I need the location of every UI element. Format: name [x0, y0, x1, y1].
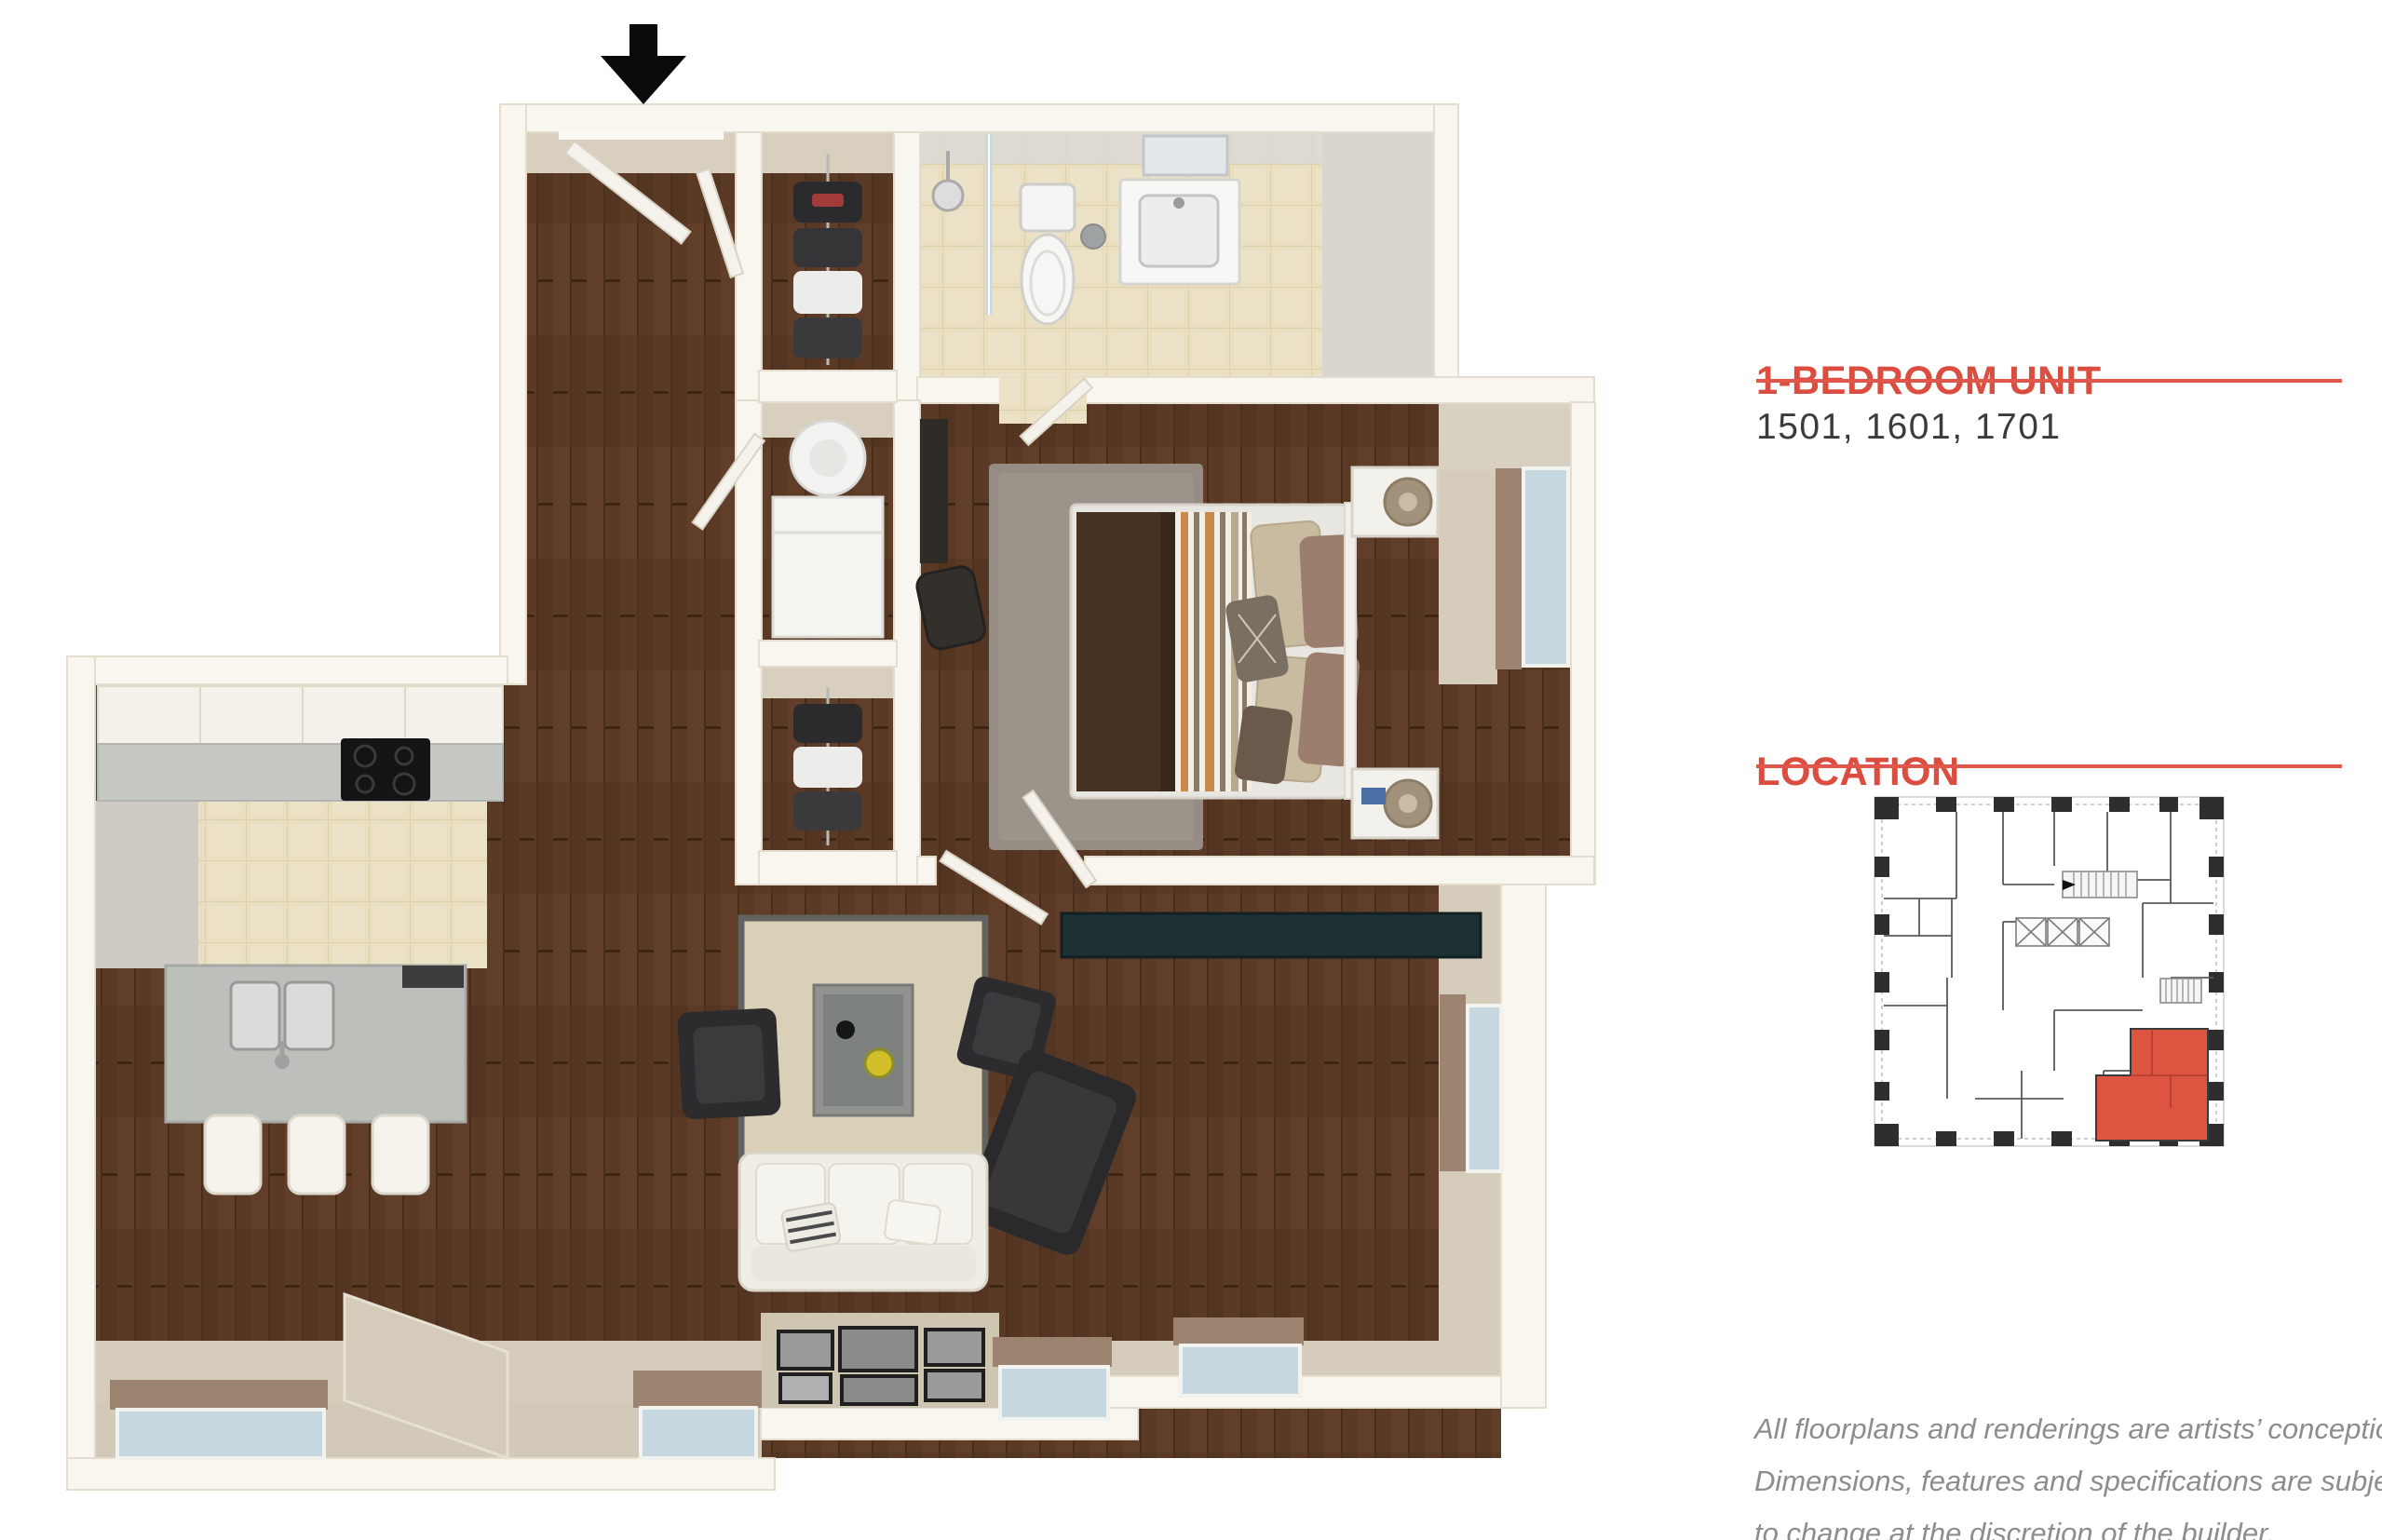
window-sill	[1173, 1317, 1304, 1345]
wall-closet-b-cap	[759, 851, 897, 885]
washer-dryer	[773, 497, 883, 637]
lamp-top	[1399, 794, 1417, 813]
wall-laundry-divider	[759, 641, 897, 667]
wall-left-entry	[500, 104, 526, 684]
coffee-table-glass	[823, 994, 903, 1106]
closet-a	[793, 154, 862, 365]
location-title-underline	[1756, 764, 2342, 768]
kettle	[836, 1020, 855, 1039]
bedroom-window-glass	[1523, 468, 1568, 666]
entry-threshold	[559, 130, 724, 140]
sink-faucet	[275, 1054, 290, 1069]
closet-b	[793, 687, 862, 845]
pillow-dark	[1234, 705, 1294, 786]
wall-bottom-right	[1108, 1376, 1546, 1408]
vanity-mirror	[1144, 136, 1227, 175]
window-sill	[1440, 994, 1466, 1171]
bed-headboard	[1345, 503, 1356, 799]
counter	[98, 744, 503, 801]
bathroom-wall-shade	[1322, 132, 1434, 377]
window-glass	[1000, 1367, 1108, 1419]
unit-title-underline	[1756, 379, 2342, 383]
island-dark-item	[402, 966, 464, 988]
hanging-shirt	[793, 747, 862, 788]
bedroom-ne-corner-wall	[1439, 402, 1571, 470]
wall-closet-bath	[894, 132, 920, 402]
water-heater-top	[809, 439, 846, 477]
toilet-bowl	[1022, 235, 1074, 324]
cooktop	[341, 738, 430, 801]
picture-frame	[840, 1328, 916, 1371]
window-glass	[117, 1410, 324, 1458]
hanging-shirt	[793, 791, 862, 831]
floorplan-flyer: 1-BEDROOM UNIT 1501, 1601, 1701 LOCATION	[0, 0, 2382, 1540]
picture-frame	[926, 1371, 983, 1400]
media-console	[1062, 913, 1481, 957]
elevators	[2016, 918, 2109, 946]
window-sill	[993, 1337, 1112, 1367]
bed-throw-brown	[1076, 512, 1173, 791]
disclaimer-line: Dimensions, features and specifications …	[1754, 1455, 2382, 1507]
bar-stool	[289, 1115, 345, 1194]
waste-bin	[1081, 224, 1105, 249]
window-glass	[641, 1408, 756, 1458]
bar-stool	[205, 1115, 261, 1194]
bar-stool	[372, 1115, 428, 1194]
wall-right-living	[1501, 885, 1546, 1408]
window-sill	[633, 1371, 762, 1408]
picture-frame	[842, 1376, 916, 1404]
stairwell-top	[2063, 871, 2137, 898]
floorplan-render	[0, 0, 1676, 1540]
window-glass	[1468, 1006, 1501, 1171]
hanging-shirt	[793, 704, 862, 743]
hanging-shirt	[793, 228, 862, 267]
unit-numbers: 1501, 1601, 1701	[1756, 407, 2062, 448]
vanity-faucet	[1173, 197, 1184, 209]
stairwell-right	[2160, 979, 2201, 1003]
disclaimer-line: to change at the discretion of the build…	[1754, 1507, 2382, 1540]
bathroom-north-wall-face	[920, 132, 1322, 164]
shower-head	[933, 181, 963, 210]
sink-basin	[285, 982, 333, 1049]
fruit-bowl	[865, 1049, 893, 1077]
armchair-cushion	[693, 1024, 765, 1104]
location-title: LOCATION	[1756, 750, 1960, 795]
kitchen-side-shade	[95, 801, 198, 968]
hanging-shirt	[793, 317, 862, 358]
kitchen-floor-tile	[198, 789, 487, 968]
picture-frame	[926, 1330, 983, 1365]
bedroom-window-sill	[1496, 468, 1522, 669]
bed-throw-fold	[1160, 512, 1175, 791]
sink-basin	[231, 982, 279, 1049]
wall-closet-a-cap	[759, 371, 897, 402]
picture-frames-platform	[761, 1313, 999, 1408]
wall-bedroom-bottom-a	[917, 857, 936, 885]
toilet-tank	[1021, 184, 1075, 231]
wall-top	[500, 104, 1457, 132]
window-glass	[1181, 1345, 1300, 1396]
shirt-logo	[812, 194, 844, 207]
wall-bottom-left	[67, 1458, 775, 1490]
wall-left	[67, 656, 95, 1490]
lamp-top	[1399, 493, 1417, 511]
bedroom-desk	[920, 419, 948, 563]
nightstand-book	[1361, 788, 1386, 804]
entry-arrow-icon	[601, 24, 686, 104]
wall-bath-right	[1434, 104, 1458, 402]
wall-closet-col-right	[894, 400, 920, 885]
disclaimer-line: All floorplans and renderings are artist…	[1754, 1403, 2382, 1455]
wall-bedroom-right	[1571, 402, 1595, 885]
sofa	[739, 1153, 987, 1290]
upper-cabinets	[98, 686, 503, 744]
sofa-back	[751, 1246, 976, 1281]
throw-pillow-white	[884, 1199, 941, 1245]
picture-frame	[780, 1374, 831, 1402]
picture-frame	[778, 1331, 832, 1369]
hanging-shirt	[793, 271, 862, 314]
wall-kitchen-top	[67, 656, 508, 684]
wall-bedroom-bottom-b	[1085, 857, 1594, 885]
disclaimer: All floorplans and renderings are artist…	[1754, 1403, 2382, 1540]
location-minimap	[1863, 791, 2228, 1156]
window-sill	[110, 1380, 328, 1410]
